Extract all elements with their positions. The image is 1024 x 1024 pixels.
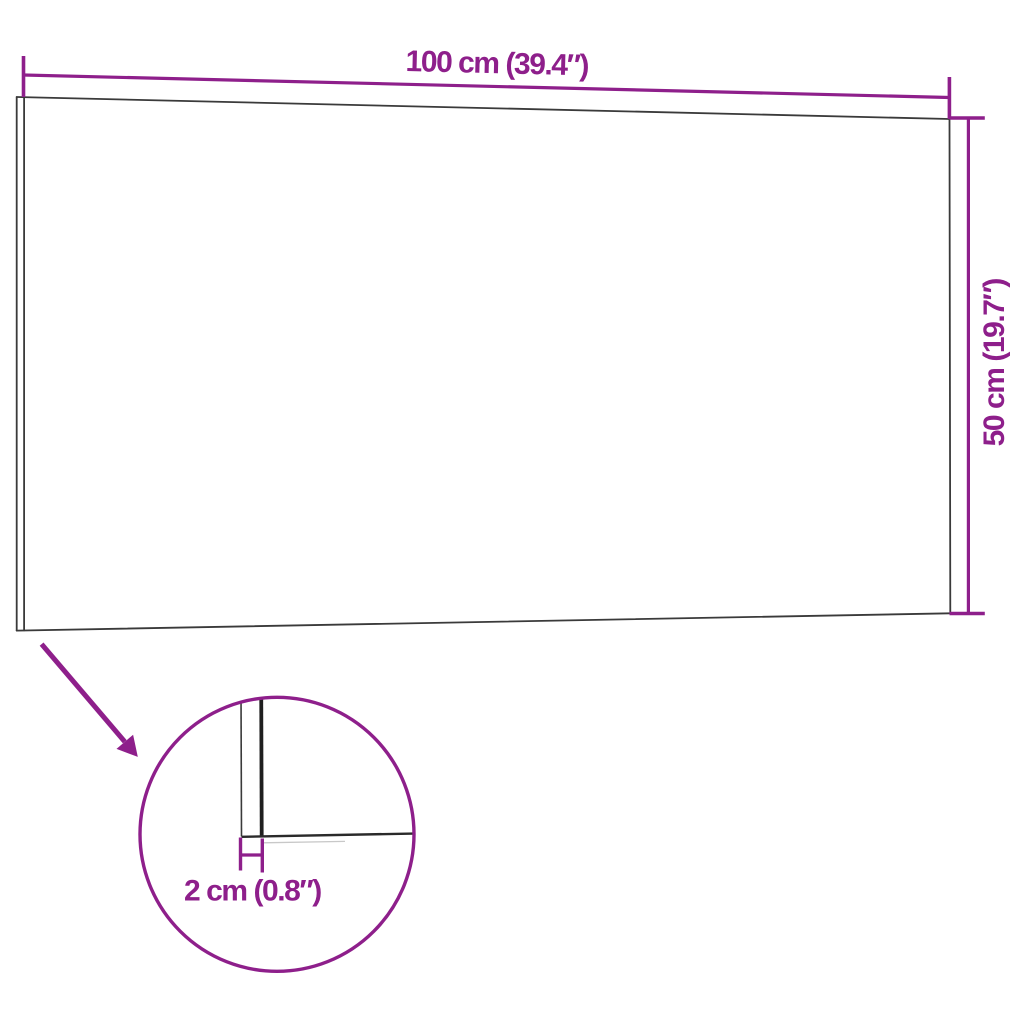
- svg-text:100 cm (39.4″): 100 cm (39.4″): [405, 45, 589, 82]
- svg-text:50 cm (19.7″): 50 cm (19.7″): [978, 279, 1011, 447]
- svg-text:2 cm (0.8″): 2 cm (0.8″): [184, 875, 321, 908]
